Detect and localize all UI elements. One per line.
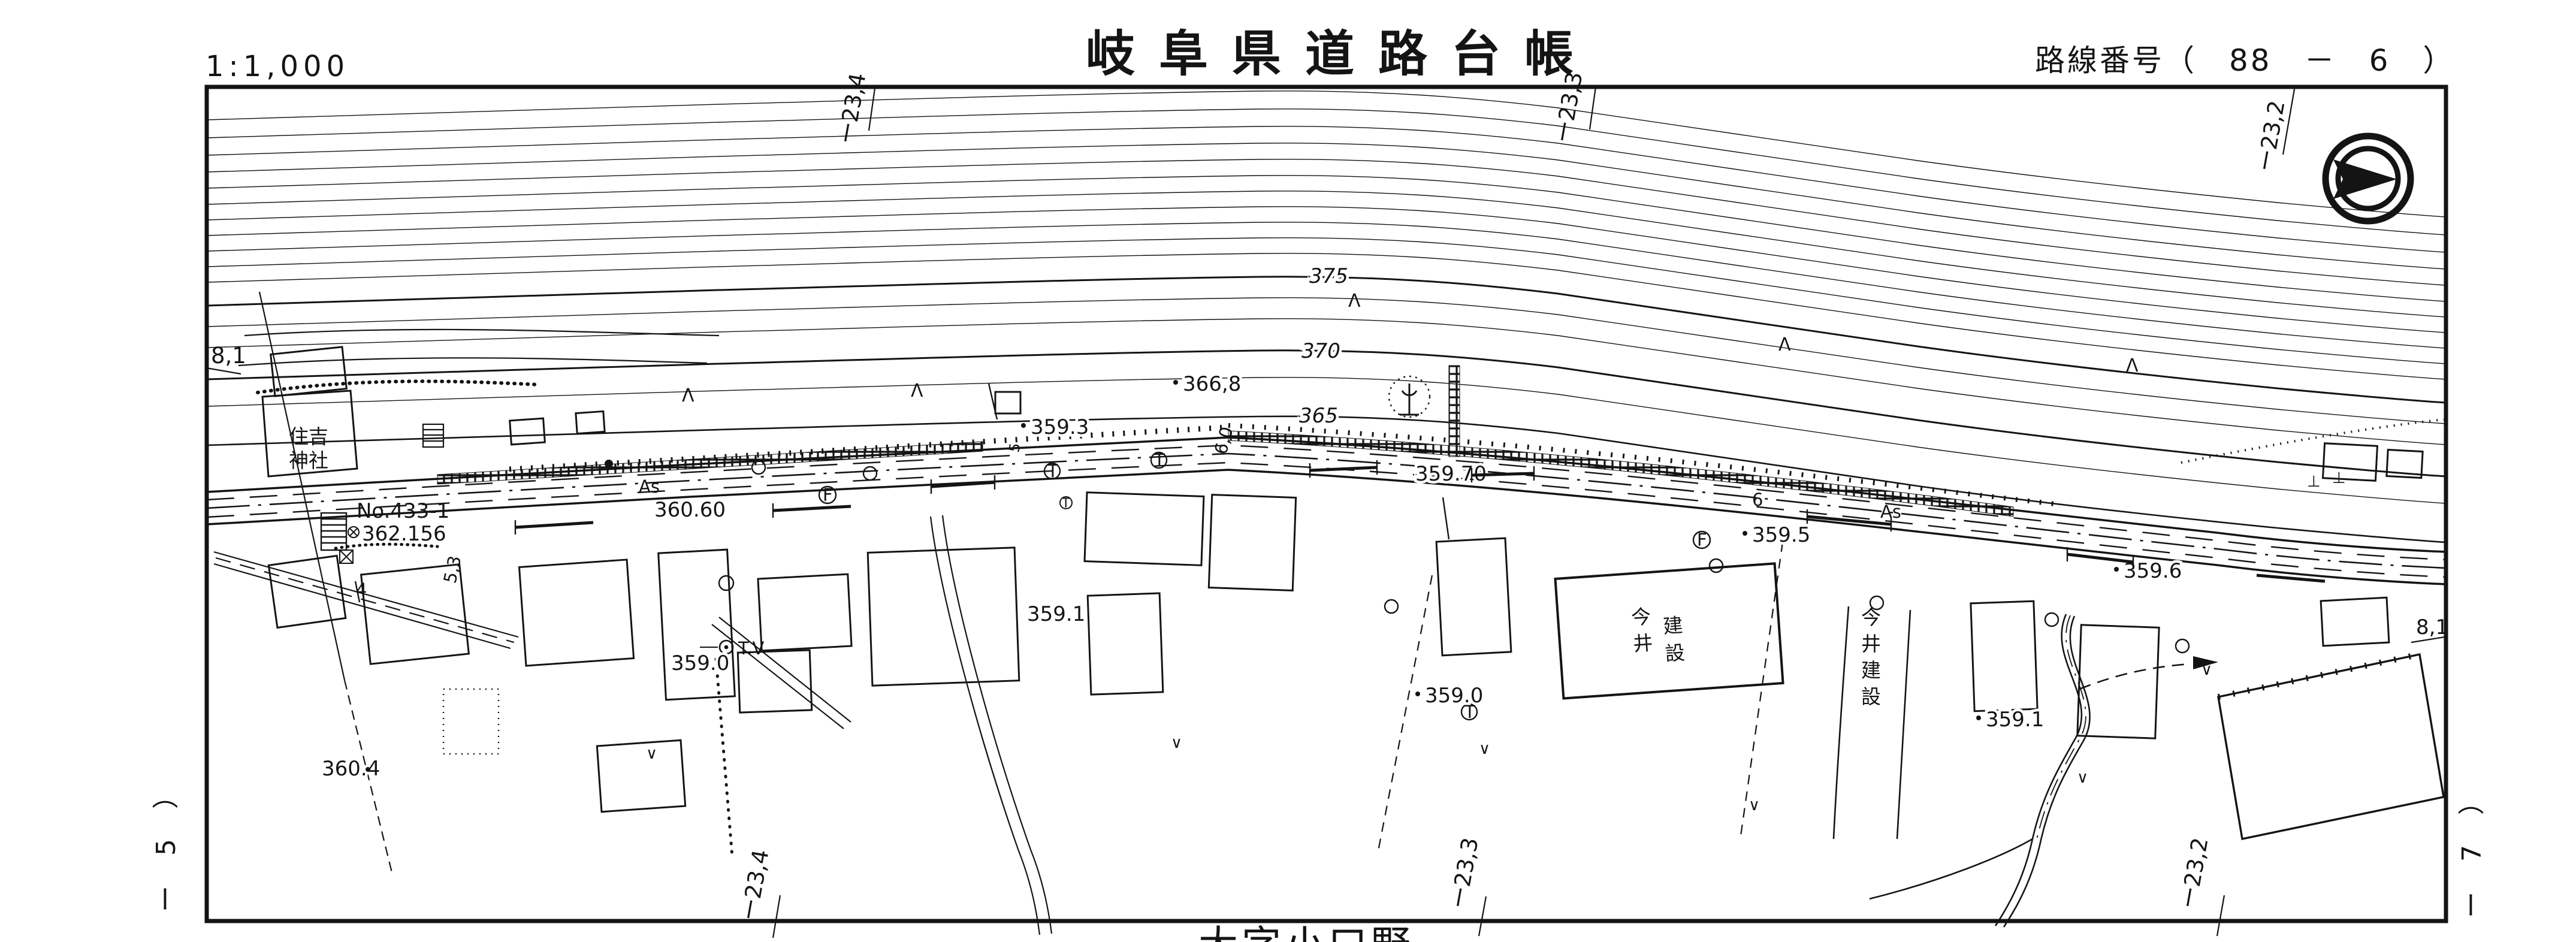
contour-label-365: 365 <box>1299 404 1338 428</box>
pole-t-glyph: T <box>1153 450 1165 470</box>
grass-icon: ∨ <box>2201 661 2212 679</box>
road-ledger-sheet: { "header": { "scale": "1:1,000", "title… <box>0 0 2576 942</box>
spot-360-4-label: 360.4 <box>322 757 380 781</box>
f-glyph: F <box>823 485 833 505</box>
spot-359-0-label: 359.0 <box>1425 684 1483 708</box>
grid-x-label: ー23,2 <box>2252 99 2290 174</box>
pole-t-glyph: T <box>1047 461 1058 481</box>
scallop-line-1 <box>258 381 539 393</box>
map-frame <box>207 87 2446 921</box>
building-hatched-right <box>2218 654 2444 839</box>
lanes-and-boundaries <box>214 292 1783 935</box>
grid-y-label: 8,1 <box>211 343 246 369</box>
conifer-icon: Λ <box>1778 334 1791 355</box>
grass-icon: ∨ <box>1171 734 1182 752</box>
imai-kensetsu-parcel-2: 今 井 建 設 <box>1834 606 1910 839</box>
tv-label: T.V <box>738 638 764 659</box>
company-char: 建 <box>1861 659 1881 682</box>
company-char: 建 <box>1662 613 1684 638</box>
manhole-icons <box>719 461 2189 653</box>
spot-height-dot <box>1173 380 1178 385</box>
adjacent-sheet-left: ー 5 ） <box>151 772 182 912</box>
pole-t-icon: T <box>1060 496 1072 511</box>
width-6-label: 6 <box>1752 490 1763 510</box>
spot-359-5-label: 359.5 <box>1752 523 1810 547</box>
header: 1:1,000 岐阜県道路台帳 路線番号（ 88 － 6 ） <box>206 26 2455 83</box>
scale-label: 1:1,000 <box>206 50 349 83</box>
grass-icon: ∨ <box>1479 740 1490 758</box>
benchmark-value-label: 362.156 <box>362 522 446 546</box>
f-symbol-icon: F <box>1693 530 1710 550</box>
pole-t-icon: T <box>1151 450 1167 470</box>
stream <box>1870 614 2218 927</box>
company-char: 今 <box>1630 605 1652 629</box>
contour-label-370: 370 <box>1301 339 1340 363</box>
road-inner-dashed-north <box>207 445 2446 560</box>
grid-x-label: ー23,4 <box>736 848 774 923</box>
grass-icon: ∨ <box>646 745 657 763</box>
wall-t-icon: ⊥ <box>2307 473 2321 491</box>
company-char: 設 <box>1861 685 1881 708</box>
grid-x-label: ー23,3 <box>1446 836 1484 911</box>
stairs-symbol-1 <box>321 513 346 550</box>
company-char: 設 <box>1664 641 1686 665</box>
f-symbol-icon: F <box>819 485 836 505</box>
tree-dot-icon <box>605 460 613 468</box>
width-6-0-label: 6,0 <box>1210 424 1237 456</box>
grid-x-label: ー23,2 <box>2176 836 2213 911</box>
stairs-symbol-2 <box>423 424 443 447</box>
page-title: 岐阜県道路台帳 <box>1086 26 1597 83</box>
spot-359-1-label: 359.1 <box>1986 708 2044 732</box>
spot-height-366-8: 366,8 <box>1183 372 1241 396</box>
pole-t-glyph: T <box>1061 496 1070 511</box>
spot-359-1-label: 359.1 <box>1027 602 1085 626</box>
grass-icon: ∨ <box>1748 796 1760 814</box>
grid-x-label: ー23,4 <box>833 71 871 146</box>
surface-as-label: As <box>639 476 660 497</box>
road-edge-north <box>207 437 2446 552</box>
width-5-label: 5 <box>1005 442 1023 454</box>
spot-359-0-label: 359.0 <box>671 651 729 675</box>
imai-kensetsu-label-1: 今 井 建 設 <box>1630 602 1686 668</box>
conifer-icon: Λ <box>911 381 923 401</box>
wall-bar <box>1449 366 1460 457</box>
company-char: 井 <box>1632 631 1654 656</box>
conifer-icon: Λ <box>682 385 694 406</box>
imai-kensetsu-building-1: 今 井 建 設 <box>1555 563 1783 698</box>
contour-labels: 375 370 365 366,8 <box>1173 264 1348 428</box>
place-name-label: 大字小口野 <box>1198 922 1414 942</box>
benchmark-icon <box>340 527 359 563</box>
grass-icon: ∨ <box>2077 769 2088 787</box>
conifer-icon: Λ <box>1348 291 1361 312</box>
shrine-name-line1: 住吉 <box>289 425 328 448</box>
point-number-label: No.433-1 <box>357 499 449 523</box>
spot-359-3-label: 359.3 <box>1031 415 1089 439</box>
route-number-label: 路線番号（ 88 － 6 ） <box>2035 43 2455 78</box>
company-char: 井 <box>1861 632 1881 656</box>
tree-crown-icon <box>1389 376 1430 417</box>
elev-360-60-label: 360.60 <box>654 498 726 522</box>
contour-label-375: 375 <box>1309 264 1348 288</box>
f-glyph: F <box>1697 530 1707 550</box>
imai-kensetsu-label-2: 今 井 建 設 <box>1861 606 1881 708</box>
grid-y-label: 8,1 <box>2416 615 2448 639</box>
grid-tick-lines <box>206 86 2445 938</box>
adjacent-sheet-right: ー 7 ） <box>2457 778 2487 918</box>
map-canvas: 1:1,000 岐阜県道路台帳 路線番号（ 88 － 6 ） 375 370 3… <box>0 0 2576 942</box>
conifer-icon: Λ <box>2126 355 2139 376</box>
grid-reference: ー23,4 ー23,3 ー23,2 ー23,4 ー23,3 ー23,2 8,1 … <box>151 70 2487 938</box>
wall-t-icon: ⊥ <box>2332 469 2346 487</box>
